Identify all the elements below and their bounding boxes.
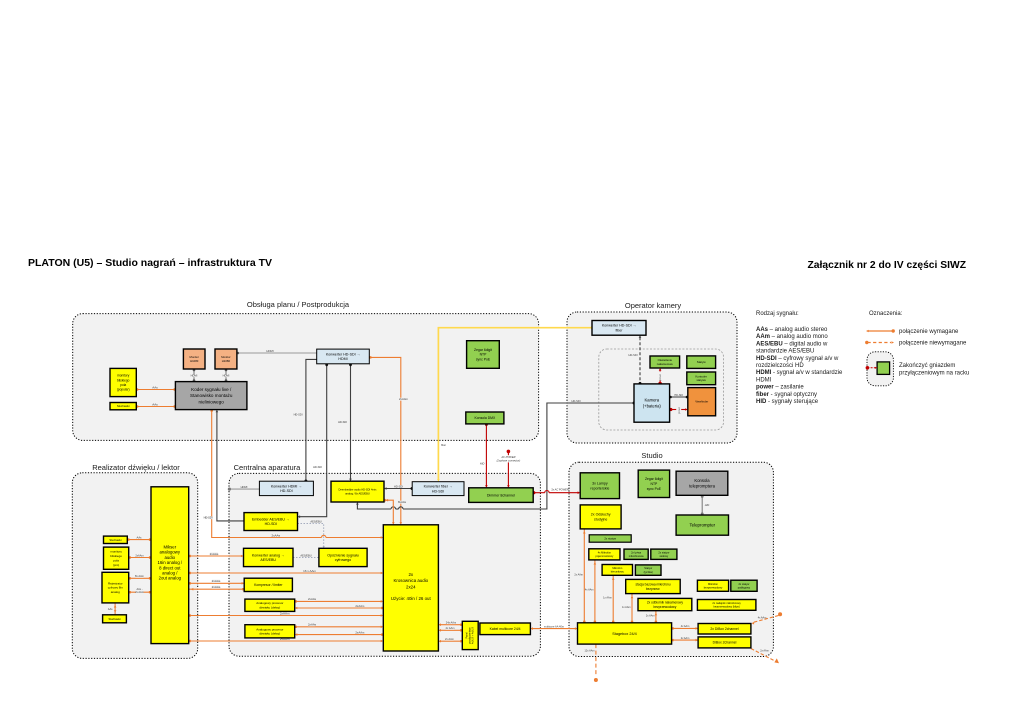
svg-text:AAs: AAs xyxy=(137,535,143,539)
svg-text:Operator kamery: Operator kamery xyxy=(625,301,682,310)
svg-text:2xAAs: 2xAAs xyxy=(308,623,317,627)
svg-text:Zakończyć gniazdem: Zakończyć gniazdem xyxy=(899,363,955,369)
svg-text:2xAAs: 2xAAs xyxy=(308,597,317,601)
svg-text:2out analog: 2out analog xyxy=(159,576,182,581)
svg-text:AAs: AAs xyxy=(108,608,113,611)
svg-text:Rodzaj sygnału:: Rodzaj sygnału: xyxy=(756,311,799,317)
svg-text:AAs – analog audio stereo: AAs – analog audio stereo xyxy=(756,327,828,333)
svg-text:cyfrowego: cyfrowego xyxy=(335,558,351,562)
svg-text:2x łyżwa: 2x łyżwa xyxy=(631,550,642,554)
svg-text:HDMI - sygnał a/v w standardzi: HDMI - sygnał a/v w standardzie xyxy=(756,370,843,376)
svg-text:HD-SDI: HD-SDI xyxy=(674,394,683,397)
svg-text:Rejestrator: Rejestrator xyxy=(108,581,123,585)
svg-text:dźwięku (delay): dźwięku (delay) xyxy=(259,631,280,635)
svg-text:4x AAm: 4x AAm xyxy=(758,617,767,620)
svg-text:Koder sygnału live /: Koder sygnału live / xyxy=(191,387,232,392)
svg-text:3x AC POWER: 3x AC POWER xyxy=(551,488,569,492)
svg-text:Stanowisko montażu: Stanowisko montażu xyxy=(190,393,233,398)
svg-text:2xAAs: 2xAAs xyxy=(210,552,219,556)
svg-text:AAs: AAs xyxy=(152,402,158,406)
svg-text:1x AAm: 1x AAm xyxy=(622,606,631,609)
svg-text:HDMI: HDMI xyxy=(266,349,273,353)
svg-text:Konsola DMX: Konsola DMX xyxy=(475,416,496,420)
svg-text:2x statyw: 2x statyw xyxy=(658,550,669,554)
svg-text:pola: pola xyxy=(120,383,126,387)
svg-text:HID: HID xyxy=(705,503,710,507)
svg-text:HD-SDI: HD-SDI xyxy=(204,516,213,520)
svg-text:H1080: H1080 xyxy=(222,359,231,363)
svg-text:bezprzew.: bezprzew. xyxy=(646,587,660,591)
svg-text:sync PoE: sync PoE xyxy=(647,487,662,491)
svg-text:Obsługa planu / Postprodukcja: Obsługa planu / Postprodukcja xyxy=(247,300,350,309)
svg-text:dźwięku (delay): dźwięku (delay) xyxy=(259,605,280,609)
svg-text:Kompresor / limiter: Kompresor / limiter xyxy=(254,583,283,587)
svg-text:HD-SDI: HD-SDI xyxy=(432,489,444,493)
svg-text:16 x AAm: 16 x AAm xyxy=(303,569,316,573)
svg-text:Teleprompter: Teleprompter xyxy=(689,523,715,528)
svg-text:NTP: NTP xyxy=(480,353,488,357)
svg-text:Krosownica audio: Krosownica audio xyxy=(393,578,428,583)
svg-text:2xAAm: 2xAAm xyxy=(399,397,409,401)
svg-text:2x AAm: 2x AAm xyxy=(574,573,583,576)
svg-text:(tyczka): (tyczka) xyxy=(644,570,653,574)
svg-text:2x Odsłuchy: 2x Odsłuchy xyxy=(591,513,611,517)
svg-text:AES/EBU: AES/EBU xyxy=(310,520,321,524)
svg-text:Konwerter HD-SDI →: Konwerter HD-SDI → xyxy=(326,352,360,356)
svg-text:telepromptera: telepromptera xyxy=(689,484,716,489)
svg-text:power – zasilanie: power – zasilanie xyxy=(756,385,804,391)
svg-text:HD-SDI: HD-SDI xyxy=(572,399,581,403)
svg-text:(+bateria): (+bateria) xyxy=(643,403,662,408)
svg-text:(pro): (pro) xyxy=(113,563,119,567)
svg-text:pola: pola xyxy=(113,558,119,562)
svg-text:HD-SDI: HD-SDI xyxy=(294,412,303,416)
svg-text:2x odbiornik nakamerowy: 2x odbiornik nakamerowy xyxy=(647,600,684,604)
svg-text:HD-SDI – cyfrowy sygnał a/v w: HD-SDI – cyfrowy sygnał a/v w xyxy=(756,356,839,362)
svg-text:2xAAm: 2xAAm xyxy=(135,553,143,557)
svg-text:2x statyw: 2x statyw xyxy=(604,536,617,540)
svg-text:HDMI: HDMI xyxy=(241,485,248,489)
svg-text:HD-SDI: HD-SDI xyxy=(265,522,277,526)
svg-text:stacja bazowa mikrofonu: stacja bazowa mikrofonu xyxy=(635,582,670,586)
svg-text:PLATON (U5) – Studio nagrań –: PLATON (U5) – Studio nagrań – infrastruk… xyxy=(28,257,272,269)
svg-text:Konwerter HDMI →: Konwerter HDMI → xyxy=(271,484,302,488)
svg-text:4x AAm: 4x AAm xyxy=(681,625,690,628)
svg-text:AAs: AAs xyxy=(152,385,158,389)
svg-text:4xXLR + 4xXLR: 4xXLR + 4xXLR xyxy=(472,627,475,644)
svg-text:AC POWER: AC POWER xyxy=(500,455,515,459)
svg-text:studyjne: studyjne xyxy=(594,518,607,522)
svg-text:analog / 8x AES/EBU: analog / 8x AES/EBU xyxy=(345,491,370,495)
svg-text:HD-SDI: HD-SDI xyxy=(338,420,347,424)
svg-text:fiber - sygnał optyczny: fiber - sygnał optyczny xyxy=(756,392,817,398)
svg-text:HID: HID xyxy=(480,461,485,465)
svg-text:HD-SDI: HD-SDI xyxy=(394,484,403,488)
svg-text:przyłączeniowym na racku: przyłączeniowym na racku xyxy=(899,370,969,376)
svg-text:podłogowy: podłogowy xyxy=(738,585,751,589)
svg-text:pojemnościowy: pojemnościowy xyxy=(596,554,614,558)
svg-text:2x24: 2x24 xyxy=(406,584,416,589)
svg-text:reporterskie: reporterskie xyxy=(590,486,609,490)
svg-text:2xAAm: 2xAAm xyxy=(355,604,365,608)
svg-text:bezprzewodowy (klips): bezprzewodowy (klips) xyxy=(713,605,739,609)
svg-text:24x AAm: 24x AAm xyxy=(446,621,456,625)
svg-text:połączenie wymagane: połączenie wymagane xyxy=(899,329,959,335)
svg-text:monitory: monitory xyxy=(117,374,130,378)
svg-text:rozdzielczości HD: rozdzielczości HD xyxy=(756,363,804,369)
svg-text:Embedder AES/EBU →: Embedder AES/EBU → xyxy=(252,517,290,521)
svg-text:3x Lampy: 3x Lampy xyxy=(592,481,608,485)
svg-text:2x DiBox 2channel: 2x DiBox 2channel xyxy=(710,627,739,631)
svg-text:AES/EBU: AES/EBU xyxy=(300,553,311,557)
svg-text:8x AAm: 8x AAm xyxy=(135,574,144,578)
svg-text:Kabel multicore 24/4: Kabel multicore 24/4 xyxy=(490,627,521,631)
svg-text:Załącznik nr 2 do IV części SI: Załącznik nr 2 do IV części SIWZ xyxy=(807,260,966,271)
svg-text:HDMI: HDMI xyxy=(338,357,347,361)
svg-text:Mikrofon: Mikrofon xyxy=(612,566,623,570)
svg-text:2x statyw: 2x statyw xyxy=(738,582,749,586)
svg-text:mikrofonowa: mikrofonowa xyxy=(629,554,644,558)
svg-text:sync PoE: sync PoE xyxy=(476,357,491,361)
svg-text:Użycie: 40in / 26 out: Użycie: 40in / 26 out xyxy=(391,596,432,601)
svg-text:HDMI: HDMI xyxy=(191,374,198,378)
svg-text:AES/EBU: AES/EBU xyxy=(260,558,276,562)
svg-text:bliskiego: bliskiego xyxy=(117,378,130,382)
svg-text:power: power xyxy=(678,407,681,413)
svg-text:bezprzewodowy: bezprzewodowy xyxy=(704,585,723,589)
svg-text:nakamerowe: nakamerowe xyxy=(657,362,673,366)
svg-text:2x AAm: 2x AAm xyxy=(681,637,690,640)
svg-text:Mikrofon: Mikrofon xyxy=(708,582,719,586)
svg-text:2x nadajnik mikrofonowy: 2x nadajnik mikrofonowy xyxy=(712,601,741,605)
svg-text:Statyw: Statyw xyxy=(644,566,652,570)
svg-text:4x AAm: 4x AAm xyxy=(585,589,594,592)
svg-text:4x AAm: 4x AAm xyxy=(446,626,455,630)
svg-text:4x Mikrofon: 4x Mikrofon xyxy=(598,550,612,554)
svg-text:2xAAm: 2xAAm xyxy=(355,630,365,634)
svg-text:statywu: statywu xyxy=(696,378,706,382)
svg-text:HDMI: HDMI xyxy=(756,377,772,383)
svg-text:Viewfinder: Viewfinder xyxy=(695,400,708,404)
svg-text:2x AAm: 2x AAm xyxy=(445,637,454,641)
svg-text:8xAAs: 8xAAs xyxy=(398,500,407,504)
svg-text:Zegar 6digit: Zegar 6digit xyxy=(474,348,492,352)
svg-text:Słuchawki: Słuchawki xyxy=(108,617,121,621)
svg-text:nieliniowego: nieliniowego xyxy=(199,399,225,404)
svg-text:AAm – analog audio mono: AAm – analog audio mono xyxy=(756,334,828,340)
svg-text:Dimmer 8channel: Dimmer 8channel xyxy=(487,493,515,497)
svg-text:Studio: Studio xyxy=(641,451,662,460)
svg-text:2xAAs: 2xAAs xyxy=(212,585,221,589)
svg-text:Zegar 6digit: Zegar 6digit xyxy=(645,477,663,481)
svg-text:2xAAs: 2xAAs xyxy=(212,579,221,583)
svg-text:Konwerter HD-SDI →: Konwerter HD-SDI → xyxy=(602,324,636,328)
svg-text:(popular): (popular) xyxy=(117,388,130,392)
svg-text:HD-SDI: HD-SDI xyxy=(280,489,292,493)
svg-text:H1080: H1080 xyxy=(190,359,199,363)
svg-text:DiBox 2channel: DiBox 2channel xyxy=(713,641,737,645)
svg-text:Konwerter fiber →: Konwerter fiber → xyxy=(424,485,453,489)
svg-text:bezprzewodowy: bezprzewodowy xyxy=(653,605,676,609)
svg-text:12x AAm: 12x AAm xyxy=(584,650,594,653)
svg-text:AES/EBU – digital audio w: AES/EBU – digital audio w xyxy=(756,341,828,347)
svg-text:fiber: fiber xyxy=(441,443,446,447)
svg-text:analog: analog xyxy=(111,590,120,594)
svg-text:cyfrowy 8in: cyfrowy 8in xyxy=(108,586,123,590)
svg-text:2xAAs: 2xAAs xyxy=(271,533,280,537)
svg-text:HD-SDI: HD-SDI xyxy=(313,465,322,469)
svg-text:NTP: NTP xyxy=(651,482,659,486)
svg-text:standardzie AES/EBU: standardzie AES/EBU xyxy=(756,349,814,355)
svg-text:fiber: fiber xyxy=(616,329,624,333)
svg-text:Kamera: Kamera xyxy=(644,398,659,403)
svg-text:Statyw: Statyw xyxy=(697,360,707,364)
svg-text:Centralna aparatura: Centralna aparatura xyxy=(234,463,302,472)
svg-text:bliskiego: bliskiego xyxy=(110,554,122,558)
svg-text:2x AAm: 2x AAm xyxy=(760,649,769,652)
svg-text:(2xphase connector): (2xphase connector) xyxy=(496,459,520,463)
svg-text:HD-SDI: HD-SDI xyxy=(629,353,638,357)
svg-text:2x: 2x xyxy=(408,572,413,577)
svg-text:2x AAm: 2x AAm xyxy=(135,591,144,594)
svg-text:połączenie niewymagane: połączenie niewymagane xyxy=(899,341,967,347)
svg-text:1x AAm: 1x AAm xyxy=(603,597,612,600)
svg-text:multicore AA 40m: multicore AA 40m xyxy=(544,624,564,628)
svg-text:stołowy: stołowy xyxy=(659,554,668,558)
svg-text:Konwerter analog →: Konwerter analog → xyxy=(252,553,285,557)
svg-text:kierunkowy: kierunkowy xyxy=(611,570,625,574)
svg-text:Oznaczenia:: Oznaczenia: xyxy=(869,311,903,317)
svg-text:power: power xyxy=(659,374,662,380)
svg-text:HID - sygnały sterujące: HID - sygnały sterujące xyxy=(756,399,819,405)
svg-text:Realizator dźwięku / lektor: Realizator dźwięku / lektor xyxy=(92,463,180,472)
svg-text:Słuchawki: Słuchawki xyxy=(109,538,122,542)
svg-text:monitory: monitory xyxy=(110,550,122,554)
svg-text:Konsola: Konsola xyxy=(694,478,710,483)
svg-text:2x AAm: 2x AAm xyxy=(646,614,655,617)
svg-text:Słuchawki: Słuchawki xyxy=(117,404,130,408)
svg-text:HDMI: HDMI xyxy=(223,374,230,378)
svg-text:Opóźnienie sygnału: Opóźnienie sygnału xyxy=(327,553,359,557)
svg-text:Deembedder audio HD-SDI 4mix: Deembedder audio HD-SDI 4mix xyxy=(339,488,378,492)
svg-text:Stagebox 24/4: Stagebox 24/4 xyxy=(612,632,637,636)
